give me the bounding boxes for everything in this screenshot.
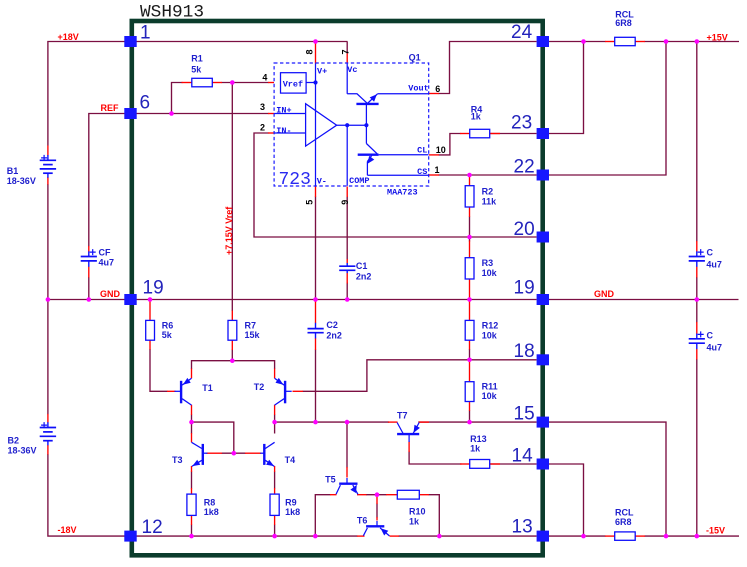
svg-text:R3: R3 [482,258,494,268]
svg-text:V-: V- [317,177,327,187]
svg-text:GND: GND [100,289,121,299]
svg-text:+18V: +18V [58,32,79,42]
svg-text:723: 723 [279,170,311,190]
svg-text:B1: B1 [7,166,19,176]
svg-text:COMP: COMP [349,176,369,186]
svg-text:6: 6 [435,84,440,94]
svg-text:12: 12 [142,517,163,538]
svg-text:R6: R6 [162,320,174,330]
svg-text:Vref: Vref [283,80,303,90]
svg-text:T5: T5 [325,475,336,485]
svg-text:T2: T2 [254,382,265,392]
svg-text:18-36V: 18-36V [7,176,36,186]
svg-text:CS: CS [417,167,427,177]
svg-text:5k: 5k [191,64,202,74]
svg-text:IN-: IN- [276,126,291,136]
svg-text:1k: 1k [471,112,482,122]
svg-text:R2: R2 [482,187,494,197]
svg-text:Q1: Q1 [409,52,421,62]
svg-text:1k8: 1k8 [204,507,219,517]
svg-text:RCL: RCL [615,508,634,518]
svg-text:1k: 1k [409,516,420,526]
svg-text:-15V: -15V [706,526,725,536]
svg-text:15k: 15k [245,330,261,340]
svg-text:9: 9 [340,200,350,205]
svg-text:MAA723: MAA723 [387,188,418,198]
svg-text:18-36V: 18-36V [8,446,37,456]
svg-text:19: 19 [143,278,164,299]
svg-text:1k8: 1k8 [285,507,300,517]
svg-text:10: 10 [436,145,446,155]
svg-text:R9: R9 [285,497,297,507]
svg-text:24: 24 [511,22,533,43]
svg-text:2: 2 [260,123,265,133]
svg-text:22: 22 [514,157,535,178]
svg-text:15: 15 [514,404,535,425]
svg-text:2n2: 2n2 [356,272,372,282]
svg-text:R11: R11 [482,382,498,392]
svg-text:4: 4 [262,73,267,83]
svg-text:B2: B2 [8,436,20,446]
svg-text:23: 23 [511,113,532,134]
svg-text:5: 5 [305,200,315,205]
svg-text:5k: 5k [162,330,173,340]
svg-text:CL: CL [417,146,427,156]
svg-text:4u7: 4u7 [707,342,723,352]
svg-text:IN+: IN+ [276,106,291,116]
svg-text:Vout: Vout [408,84,428,94]
svg-text:WSH913: WSH913 [140,2,204,22]
svg-text:18: 18 [514,341,535,362]
svg-text:T7: T7 [397,410,408,420]
svg-text:R1: R1 [191,54,203,64]
svg-text:T3: T3 [172,455,183,465]
svg-text:+7.15V Vref: +7.15V Vref [224,206,234,255]
svg-text:+15V: +15V [707,33,728,43]
svg-text:R7: R7 [245,320,257,330]
svg-text:10k: 10k [482,391,498,401]
svg-text:4u7: 4u7 [706,260,722,270]
svg-text:C1: C1 [356,261,368,271]
svg-text:T4: T4 [285,455,296,465]
svg-text:10k: 10k [482,330,498,340]
svg-text:7: 7 [341,49,351,54]
svg-text:V+: V+ [317,66,327,76]
svg-text:R13: R13 [470,434,487,444]
svg-text:CF: CF [99,248,111,258]
svg-text:1k: 1k [470,444,481,454]
svg-text:6R8: 6R8 [615,517,632,527]
svg-text:R8: R8 [204,497,216,507]
svg-text:8: 8 [305,49,315,54]
svg-text:Vc: Vc [347,65,357,75]
svg-text:-18V: -18V [58,525,77,535]
svg-text:13: 13 [512,517,533,538]
svg-text:C: C [707,330,714,340]
svg-text:2n2: 2n2 [326,330,342,340]
svg-text:3: 3 [260,102,265,112]
svg-text:C2: C2 [326,320,338,330]
svg-text:6R8: 6R8 [615,18,632,28]
svg-text:1: 1 [140,23,151,44]
svg-text:T1: T1 [202,383,213,393]
svg-text:6: 6 [140,93,151,114]
svg-text:4u7: 4u7 [99,257,115,267]
svg-text:20: 20 [514,219,535,240]
svg-text:GND: GND [594,289,615,299]
svg-text:R10: R10 [409,507,426,517]
svg-text:10k: 10k [482,268,498,278]
svg-text:C: C [707,248,714,258]
svg-text:19: 19 [514,278,535,299]
svg-text:T6: T6 [357,516,368,526]
svg-text:11k: 11k [482,197,498,207]
svg-text:REF: REF [101,103,120,113]
svg-text:1: 1 [435,165,440,175]
svg-text:14: 14 [512,446,534,467]
svg-text:R12: R12 [482,321,499,331]
